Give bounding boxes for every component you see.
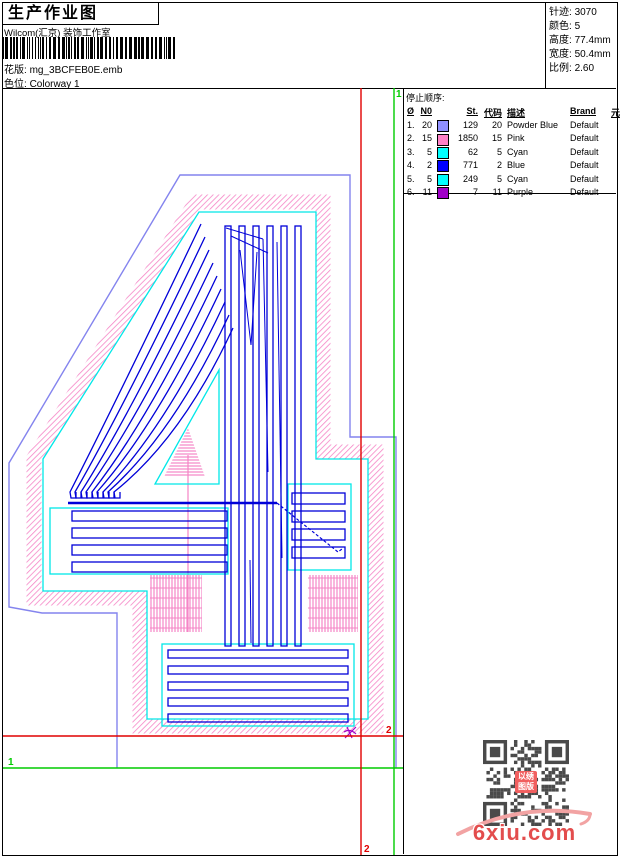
pink-patch-triangle [164, 428, 205, 477]
blue-fill-stitches [68, 224, 348, 722]
pink-patch-right [308, 575, 358, 632]
watermark-stamp: 以绣 图版 [515, 771, 537, 793]
watermark-site-text: 6xiu.com [452, 820, 597, 846]
end-marker-label-bottom: 2 [364, 844, 370, 855]
start-marker-label-top: 1 [396, 89, 402, 100]
worksheet-page: 生产作业图 Wilcom(汇京) 装饰工作室 花版: mg_3BCFEB0E.e… [0, 0, 620, 860]
stamp-text-bottom: 图版 [515, 782, 537, 792]
start-marker-label-left: 1 [8, 757, 14, 768]
embroidery-design-canvas: 1 1 2 2 [0, 0, 620, 860]
pink-patch-left [150, 575, 202, 632]
stamp-text-top: 以绣 [515, 772, 537, 782]
end-marker-label-right: 2 [386, 725, 392, 736]
